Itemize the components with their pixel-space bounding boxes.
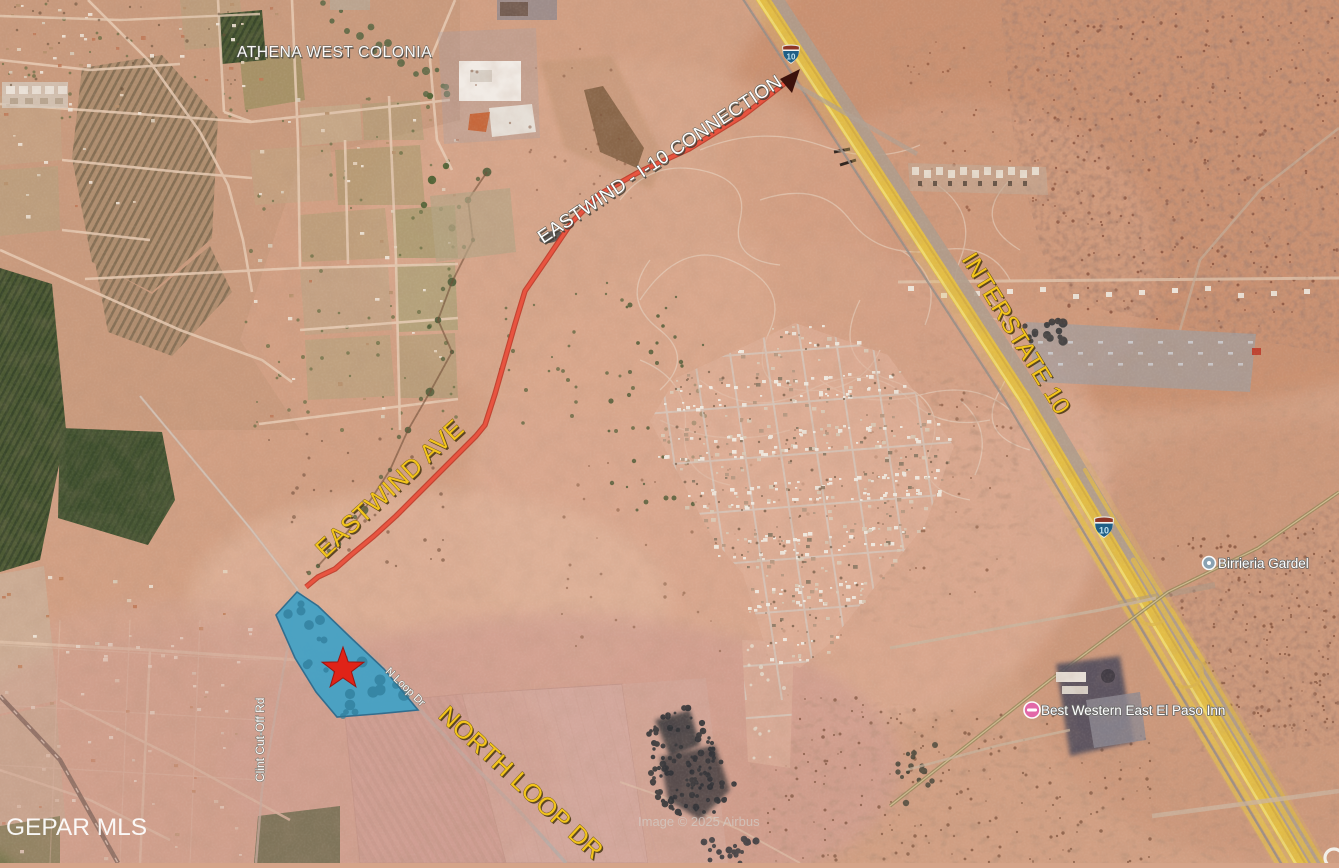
svg-text:10: 10: [787, 53, 796, 62]
svg-text:10: 10: [1099, 525, 1109, 535]
svg-text:GEPAR MLS: GEPAR MLS: [6, 814, 147, 841]
svg-text:Best Western East El Paso Inn: Best Western East El Paso Inn: [1041, 703, 1225, 718]
svg-text:ATHENA WEST COLONIA: ATHENA WEST COLONIA: [237, 44, 432, 61]
svg-text:Image © 2025 Airbus: Image © 2025 Airbus: [638, 814, 760, 829]
svg-text:Birrieria Gardel: Birrieria Gardel: [1218, 556, 1309, 571]
svg-text:Clint Cut-Off Rd: Clint Cut-Off Rd: [253, 698, 267, 782]
